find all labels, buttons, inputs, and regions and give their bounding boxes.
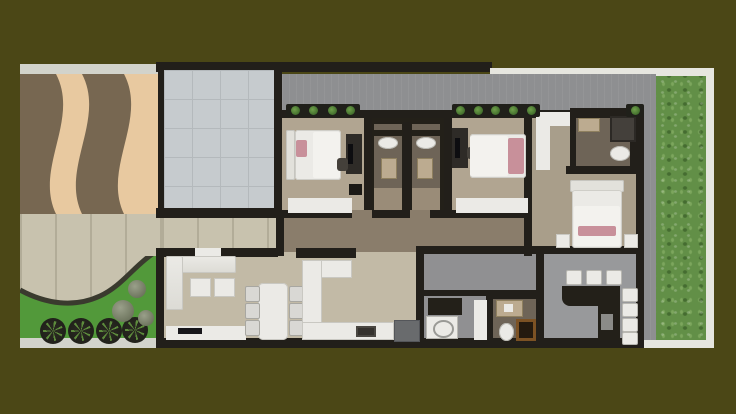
laundry-counter xyxy=(428,298,462,315)
kitchen-counter-bottom xyxy=(302,322,394,340)
bed2-master-wall xyxy=(524,108,532,256)
powder-north-wall xyxy=(486,292,540,299)
bed-1-duvet xyxy=(313,132,340,178)
washing-machine xyxy=(426,316,458,339)
sidewalk-top xyxy=(20,64,158,74)
plot-border-right xyxy=(706,68,714,348)
bar-stool-4 xyxy=(622,288,638,302)
master-toilet xyxy=(610,146,630,161)
garage-south-wall xyxy=(156,208,282,218)
bedroom-2-wardrobe xyxy=(456,198,528,213)
bath-2-sink xyxy=(416,137,436,149)
garage-west-wall xyxy=(158,62,164,216)
master-shower xyxy=(610,116,636,142)
planter-plant-icon xyxy=(527,106,536,115)
nightstand-right xyxy=(624,234,638,248)
bedroom-2-door xyxy=(410,210,430,218)
bed-2-blanket xyxy=(508,138,524,174)
powder-soap xyxy=(504,304,513,312)
laundry-door xyxy=(474,300,487,340)
bath-1-sink xyxy=(378,137,398,149)
fridge xyxy=(394,320,420,342)
bush-icon xyxy=(112,300,134,322)
planter-plant-icon xyxy=(309,106,318,115)
palm-tree-icon xyxy=(40,318,66,344)
bathroom-2-doorway xyxy=(412,188,440,210)
plot-border-bottom xyxy=(633,340,714,348)
planter-plant-icon xyxy=(346,106,355,115)
planter-plant-icon xyxy=(328,106,337,115)
powder-toilet xyxy=(499,323,514,341)
bar-counter-side xyxy=(598,286,620,340)
bush-icon xyxy=(138,310,154,326)
dining-chair-2 xyxy=(245,303,260,319)
master-bed-pillows xyxy=(578,226,616,236)
bedroom-1-wardrobe xyxy=(288,198,352,213)
bath-bed2-wall xyxy=(444,114,452,216)
planter-plant-icon xyxy=(474,106,483,115)
bed-2-duvet xyxy=(470,136,508,176)
planter-box-3 xyxy=(626,104,644,117)
bath-1-toilet xyxy=(381,158,397,179)
garage xyxy=(164,70,274,216)
bar-stool-6 xyxy=(622,318,638,332)
service-north-wall xyxy=(416,246,538,254)
garage-east-wall xyxy=(274,62,282,218)
master-bath-vanity xyxy=(578,118,600,132)
master-bath-south-wall xyxy=(566,166,636,174)
dining-chair-1 xyxy=(245,286,260,302)
palm-tree-icon xyxy=(96,318,122,344)
pc-monitor-2 xyxy=(455,138,460,158)
bar-appliance xyxy=(601,314,613,330)
bath-divider-wall xyxy=(403,122,411,212)
entry-porch-pavers xyxy=(162,216,276,250)
dining-chair-3 xyxy=(245,320,260,336)
bed-1-pillow xyxy=(296,140,307,157)
planter-box-1 xyxy=(286,104,360,117)
planter-plant-icon xyxy=(509,106,518,115)
nightstand-left xyxy=(556,234,570,248)
palm-tree-icon xyxy=(68,318,94,344)
wood-mat xyxy=(516,319,536,341)
tv xyxy=(178,328,202,334)
planter-plant-icon xyxy=(456,106,465,115)
planter-plant-icon xyxy=(631,106,640,115)
bath-1-counter xyxy=(374,130,402,136)
planter-box-2 xyxy=(452,104,540,117)
bed-1-headboard xyxy=(286,130,295,180)
bath-2-counter xyxy=(412,130,440,136)
bar-stool-5 xyxy=(622,303,638,317)
floor-plan-scene xyxy=(0,0,736,414)
bar-stool-3 xyxy=(606,270,622,285)
bar-stool-2 xyxy=(586,270,602,285)
bush-icon xyxy=(128,280,146,298)
pc-monitor-1 xyxy=(348,144,353,164)
bed1-bath-wall xyxy=(364,114,372,216)
bar-stool-7 xyxy=(622,332,638,345)
bar-stool-1 xyxy=(566,270,582,285)
driveway xyxy=(20,74,160,214)
printer-1 xyxy=(349,184,362,195)
cooktop xyxy=(356,326,376,337)
living-west-wall xyxy=(156,252,164,348)
east-lawn xyxy=(656,76,706,340)
bedroom-1-door xyxy=(352,210,372,218)
dining-table xyxy=(258,283,288,340)
sofa-side-arm xyxy=(166,256,183,310)
driveway-wave-pattern xyxy=(20,74,160,214)
bath-2-toilet xyxy=(417,158,433,179)
ottoman-1 xyxy=(190,278,211,297)
planter-plant-icon xyxy=(291,106,300,115)
desk-chair-1 xyxy=(337,158,348,171)
ottoman-2 xyxy=(214,278,235,297)
planter-plant-icon xyxy=(491,106,500,115)
closet-unit-side xyxy=(536,112,550,170)
kitchen-north-wall xyxy=(296,248,356,258)
bathroom-1-doorway xyxy=(374,188,402,210)
